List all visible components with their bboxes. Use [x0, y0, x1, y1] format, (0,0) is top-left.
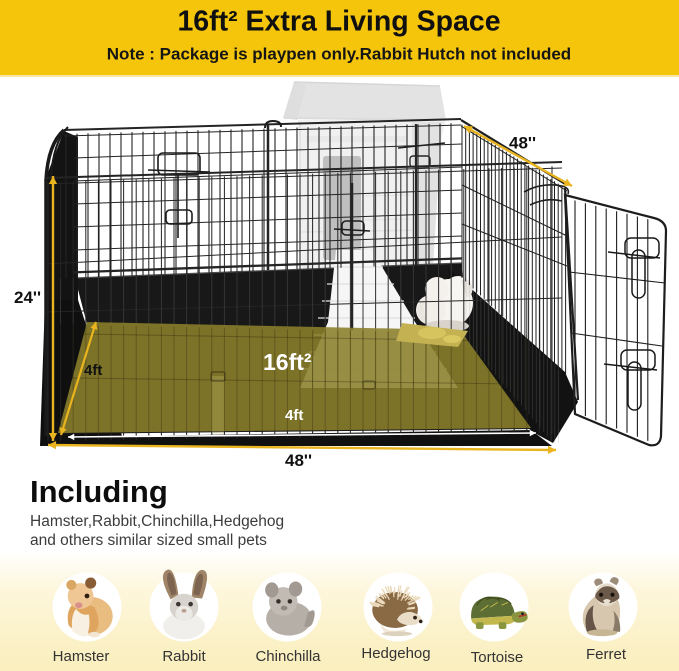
svg-text:48'': 48'': [509, 134, 536, 153]
svg-text:Hamster: Hamster: [53, 648, 110, 665]
svg-text:Hamster,Rabbit,Chinchilla,Hedg: Hamster,Rabbit,Chinchilla,Hedgehog: [30, 513, 284, 530]
svg-text:16ft²: 16ft²: [263, 349, 312, 375]
svg-text:24'': 24'': [14, 288, 41, 307]
svg-text:16ft² Extra Living Space: 16ft² Extra Living Space: [177, 6, 500, 38]
svg-text:Note : Package is playpen only: Note : Package is playpen only.Rabbit Hu…: [107, 45, 571, 64]
svg-text:Ferret: Ferret: [586, 646, 627, 663]
svg-text:Chinchilla: Chinchilla: [255, 648, 321, 665]
svg-text:4ft: 4ft: [285, 407, 303, 424]
svg-text:48'': 48'': [285, 451, 312, 470]
svg-text:Including: Including: [30, 474, 168, 509]
svg-text:Tortoise: Tortoise: [471, 649, 524, 666]
svg-text:4ft: 4ft: [84, 362, 102, 379]
svg-text:Hedgehog: Hedgehog: [361, 645, 430, 662]
svg-text:and others similar sized small: and others similar sized small pets: [30, 532, 267, 549]
svg-text:Rabbit: Rabbit: [162, 648, 206, 665]
